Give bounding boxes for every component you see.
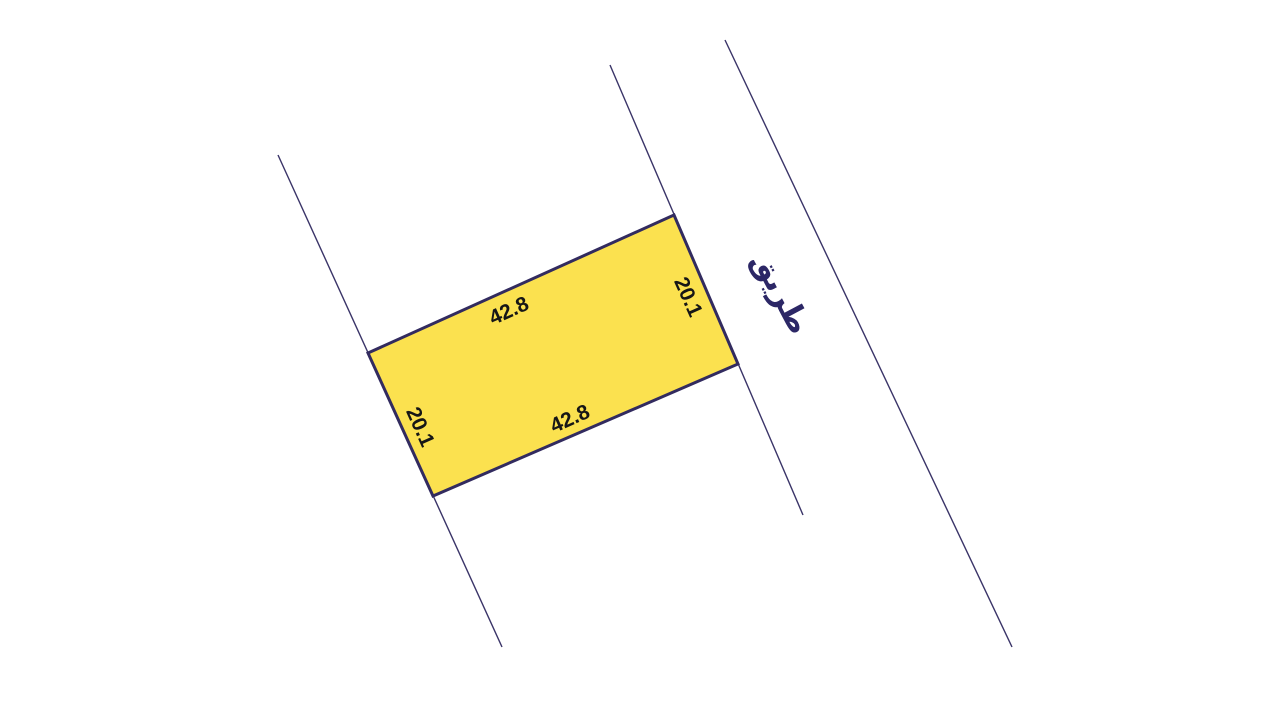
road-edge-line-outer bbox=[725, 40, 1012, 647]
land-plot-polygon bbox=[368, 215, 738, 496]
road-name-label: طريق bbox=[744, 246, 817, 341]
cadastral-plan-svg: 42.8 20.1 42.8 20.1 طريق bbox=[0, 0, 1280, 720]
cadastral-plan-stage: 42.8 20.1 42.8 20.1 طريق bbox=[0, 0, 1280, 720]
